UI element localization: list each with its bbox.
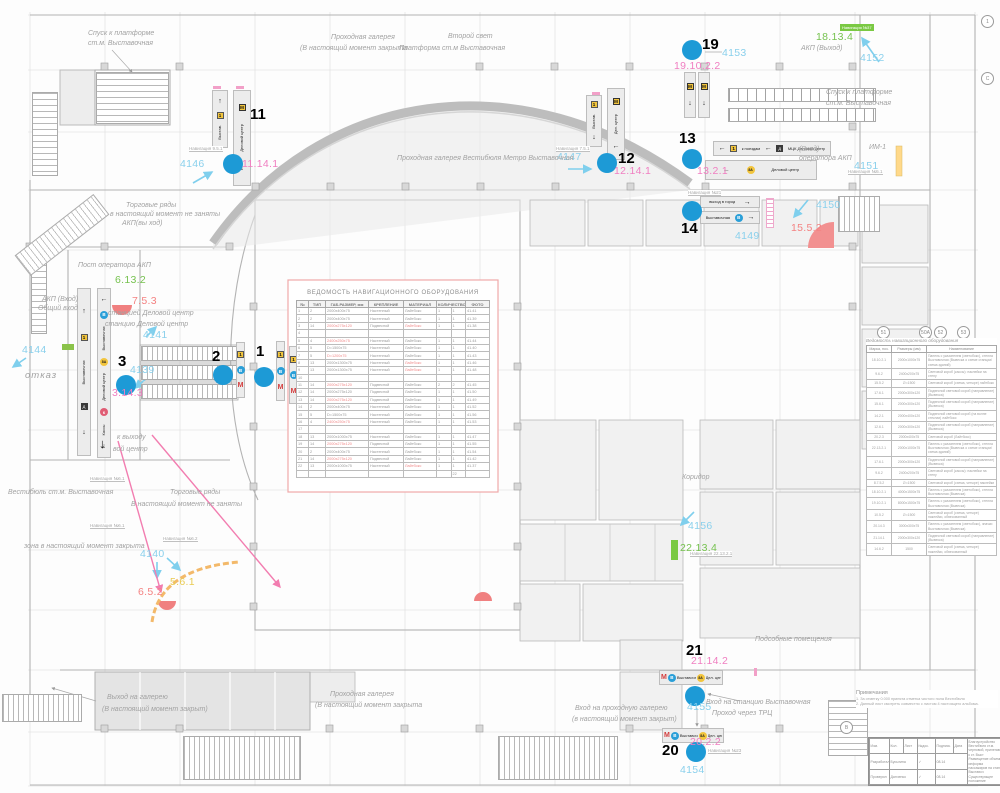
m-red-icon (278, 384, 284, 391)
arrow-left-icon (765, 145, 772, 152)
sign-text: Деловой центр (102, 373, 106, 401)
cell-material (404, 374, 437, 381)
cell-mark: 9.6.2 (867, 468, 892, 480)
cell-mount: Настенный (369, 463, 404, 470)
table-row: 5 4 2400x250x75 Настенный Лайтбокс 1 1 4… (297, 337, 490, 344)
table-row: 13 14 2000x275x120 Подвесной Лайтбокс 1 … (297, 396, 490, 403)
table-row: 11 14 2000x275x120 Подвесной Лайтбокс 2 … (297, 381, 490, 388)
cell-photo: 41.40 (466, 344, 490, 351)
cell-size: D=1200x75 (326, 352, 369, 359)
wayfinding-sign: Выстав. (586, 95, 602, 147)
cell-size: 2000x275x120 (326, 396, 369, 403)
col-number: № (297, 301, 309, 308)
table-row: 18 13 2000x1000x75 Настенный Лайтбокс 1 … (297, 433, 490, 440)
cell-dimensions: 2000x1000x75 (892, 353, 927, 369)
cell-qty-1: 1 (437, 455, 452, 462)
cell-number: 15 (297, 411, 309, 418)
dot-blue-icon (671, 732, 679, 740)
tb-sig-1: ✓ (918, 754, 936, 769)
cell-material: Лайтбокс (404, 441, 437, 448)
cell-photo: 41.54 (466, 448, 490, 455)
table-row: 12 14 2000x275x120 Подвесной Лайтбокс 1 … (297, 389, 490, 396)
cell-size: 2000x275x120 (326, 441, 369, 448)
table-row: 15 5 D=1500x75 Настенный Лайтбокс 1 1 41… (297, 411, 490, 418)
cell-total: 22 (451, 470, 466, 477)
navigation-tag: Навигация №21 (688, 190, 721, 196)
cell-dimensions: 2000x300x120 (892, 387, 927, 399)
cell-qty-1: 1 (437, 463, 452, 470)
navigation-tag: Навигация №6.2 (163, 536, 198, 542)
cell-mount: Настенный (369, 352, 404, 359)
cad-label: Подсобные помещения (755, 636, 832, 643)
location-marker-dot[interactable] (254, 367, 274, 387)
cell-qty-2: 1 (451, 352, 466, 359)
dot-blue-icon (277, 367, 285, 375)
cell-type: 13 (309, 359, 326, 366)
wayfinding-sign (276, 341, 285, 401)
cell-dimensions: ∅=1500 (892, 479, 927, 486)
cell-name: Световой короб (схема, четыре) лайтбокс (927, 380, 997, 387)
cad-label: АКП(вы ход) (122, 220, 162, 227)
cell-number: 17 (297, 426, 309, 433)
cell-number: 21 (297, 455, 309, 462)
cell-material: Лайтбокс (404, 448, 437, 455)
cell-size: 2000x275x120 (326, 322, 369, 329)
pink-zone-hatch (766, 198, 774, 228)
cell-qty-1: 1 (437, 441, 452, 448)
table-row: 14.6.2 1500 Световой короб (схема, четыр… (867, 544, 997, 556)
cell-name: Подвесной световой короб (направление) (… (927, 387, 997, 399)
cell-qty-1: 1 (437, 367, 452, 374)
col-photo: ФОТО (466, 301, 490, 308)
cell-material (404, 330, 437, 337)
cell-photo: 41.45 (466, 381, 490, 388)
cad-label: В настоящий момент не заняты (131, 501, 242, 508)
table-row: 9 13 2000x1300x75 Настенный Лайтбокс 1 1… (297, 367, 490, 374)
cell-material: Лайтбокс (404, 389, 437, 396)
cell-qty-2: 1 (451, 359, 466, 366)
cell-dimensions: ∅=1500 (892, 380, 927, 387)
cell-name: Подвесной световой короб (направление) (… (927, 422, 997, 434)
cell-mark: 20.2.3 (867, 433, 892, 440)
tb-izm: Изм. (870, 739, 890, 754)
position-code: 7.5.3 (132, 295, 157, 307)
cell-size: 2400x250x75 (326, 418, 369, 425)
table-row: 10.5.2 ∅=1500 Световой короб (схема, чет… (867, 509, 997, 521)
cell-mount: Подвесной (369, 396, 404, 403)
cell-name: Подвесной световой короб (на волне стекл… (927, 410, 997, 422)
position-code: 4146 (180, 158, 205, 170)
navigation-equipment-list: Ведомость навигационного оборудования Ма… (866, 338, 997, 556)
dot-blue-icon (735, 214, 743, 222)
cad-label: станцией Деловой центр (108, 310, 194, 317)
wayfinding-sign: выход в город (700, 196, 760, 208)
table-row: 9.6.2 2400x200x75 Световой короб (кассы)… (867, 368, 997, 380)
cad-label: Второй свет (448, 33, 493, 40)
wayfinding-sign (698, 72, 710, 118)
cell-number: 8 (297, 359, 309, 366)
cad-label: Платформа ст.м Выставочная (399, 45, 505, 52)
cell-type (309, 330, 326, 337)
cad-label: АКП (Вход) (42, 296, 78, 303)
cell-name: Панель с указателем (светобокс), стелла … (927, 440, 997, 456)
position-code: 4152 (860, 52, 885, 64)
cell-mount: Подвесной (369, 441, 404, 448)
cell-number: 14 (297, 404, 309, 411)
cell-dimensions: 8000x1500x75 (892, 498, 927, 510)
cell-size: 2000x1000x75 (326, 463, 369, 470)
navigation-tag: Навигация №6.1 (90, 476, 125, 482)
table-row: 17.6.1 2000x300x120 Подвесной световой к… (867, 387, 997, 399)
cell-photo: 41.37 (466, 463, 490, 470)
cell-dimensions: 2000x400x120 (892, 410, 927, 422)
cell-qty-1: 1 (437, 322, 452, 329)
cell-mark: 22.13.2.1 (867, 440, 892, 456)
position-code: 12.14.1 (614, 165, 651, 177)
cad-label: Вход на станцию Выставочная (706, 699, 811, 706)
position-code: 5.6.1 (170, 576, 195, 588)
position-code: 3.14.3 (112, 387, 143, 399)
cell-mark: 8.7.5.2 (867, 479, 892, 486)
position-code: 4141 (143, 329, 168, 341)
sq-dark-icon (81, 403, 88, 410)
cell-type: 14 (309, 455, 326, 462)
table-row: 12.6.1 2000x300x120 Подвесной световой к… (867, 422, 997, 434)
table-row: 16 4 2400x250x75 Настенный Лайтбокс 1 1 … (297, 418, 490, 425)
position-code: 18.13.4 (816, 31, 853, 43)
cell-mark: 15.6.1 (867, 399, 892, 411)
cell-mark: 17.6.1 (867, 456, 892, 468)
cell-material: Лайтбокс (404, 381, 437, 388)
cell-photo: 41.48 (466, 367, 490, 374)
cell-type: 2 (309, 308, 326, 315)
cell-material: Лайтбокс (404, 367, 437, 374)
arrow-down-icon (688, 100, 692, 107)
navigation-tag: Навигация 22.13.2.1 (690, 551, 732, 557)
arrow-right-icon (744, 199, 751, 206)
cell-type (309, 374, 326, 381)
cell-number: 1 (297, 308, 309, 315)
grid-axis-bubble: С (981, 72, 994, 85)
cell-size: 2000x1000x75 (326, 433, 369, 440)
cell-qty-2: 1 (451, 344, 466, 351)
cell-number: 4 (297, 330, 309, 337)
cell-qty-2 (451, 330, 466, 337)
turnstiles-hatch-right (838, 196, 880, 232)
cad-label: Проходная галерея (330, 691, 394, 698)
cell-size: D=1500x75 (326, 411, 369, 418)
m-yellow-icon (687, 83, 694, 90)
cell-mount: Подвесной (369, 455, 404, 462)
cell-qty-2: 1 (451, 404, 466, 411)
cell-material: Лайтбокс (404, 404, 437, 411)
cell-mark: 14.6.2 (867, 544, 892, 556)
cell-dimensions: 2000x300x120 (892, 456, 927, 468)
cell-qty-1: 1 (437, 404, 452, 411)
position-code: 20.2.2 (690, 736, 721, 748)
cell-material: Лайтбокс (404, 411, 437, 418)
cell-dimensions: ∅=1500 (892, 509, 927, 521)
table-row: 15.6.1 2000x300x120 Подвесной световой к… (867, 399, 997, 411)
cell-material: Лайтбокс (404, 322, 437, 329)
cell-number: 2 (297, 315, 309, 322)
grid-axis-bubble: В (840, 721, 853, 734)
col-dimensions: Размеры (мм) (892, 346, 927, 353)
escalator-hatch-3 (141, 384, 237, 399)
wayfinding-sign: Выстав. (212, 90, 228, 148)
position-code: 13.2.1 (697, 165, 728, 177)
cell-qty-1: 1 (437, 344, 452, 351)
cell-material: Лайтбокс (404, 455, 437, 462)
equipment-schedule-title: ВЕДОМОСТЬ НАВИГАЦИОННОГО ОБОРУДОВАНИЯ (296, 290, 490, 296)
cell-qty-1: 1 (437, 359, 452, 366)
floor-plan-canvas: Выстав.Деловой центрВыстав.Дел. центрк п… (0, 0, 1000, 793)
arrow-down-icon (82, 429, 86, 436)
cell-qty-1: 1 (437, 448, 452, 455)
green-navigation-tag: Навигация №37 (840, 24, 874, 31)
navigation-tag: Навигация №5.1 (848, 169, 883, 175)
location-marker-dot[interactable] (682, 40, 702, 60)
cad-label: Проходная галерея (331, 34, 395, 41)
cad-label: в настоящий момент не заняты (110, 211, 220, 218)
wayfinding-sign: ВыставочнаяДел. центр (659, 670, 723, 685)
cell-mark: 19.10.2.1 (867, 498, 892, 510)
cell-dimensions: 2400x200x75 (892, 368, 927, 380)
cell-type: 2 (309, 448, 326, 455)
cell-type: 5 (309, 344, 326, 351)
table-row: 6 5 D=1500x75 Настенный Лайтбокс 1 1 41.… (297, 344, 490, 351)
tb-date-2: 08.14 (936, 769, 968, 784)
arrow-up-icon (82, 308, 86, 315)
cell-dimensions: 2000x300x120 (892, 532, 927, 544)
sign-text: Деловой центр (240, 124, 244, 152)
cad-label: Пост оператора АКП (78, 262, 151, 269)
position-code: 21.14.2 (691, 655, 728, 667)
cell-qty-2: 1 (451, 448, 466, 455)
cell-mount: Настенный (369, 315, 404, 322)
cell-photo: 41.50 (466, 389, 490, 396)
position-code: 4144 (22, 344, 47, 356)
cell-number: 12 (297, 389, 309, 396)
tb-role-1: Разработал (870, 754, 890, 769)
sign-text: Выстав. (592, 114, 596, 129)
col-name: Наименование (927, 346, 997, 353)
cell-qty-2: 1 (451, 441, 466, 448)
tb-kol: Кол. (890, 739, 904, 754)
position-code: 4156 (688, 520, 713, 532)
table-header-row: Марка, поз. Размеры (мм) Наименование (867, 346, 997, 353)
cell-mount: Подвесной (369, 389, 404, 396)
cell-qty-2: 1 (451, 308, 466, 315)
cell-mount: Настенный (369, 418, 404, 425)
cad-label: Проходная галерея Вестибюля Метро Выстав… (397, 155, 573, 162)
location-marker-number: 14 (681, 221, 698, 236)
sign-text: Выстав. (218, 125, 222, 140)
cad-label: оператора АКП (799, 155, 852, 162)
location-marker-number: 1 (256, 344, 264, 359)
cell-size: 2000x400x75 (326, 404, 369, 411)
position-code: 6.5.2 (138, 586, 163, 598)
note-item: 2. Данный лист смотреть совместно с лист… (856, 702, 998, 707)
position-code: 15.5.2 (791, 222, 822, 234)
cell-qty-1: 1 (437, 396, 452, 403)
cell-name: Подвесной световой короб (направление) (… (927, 532, 997, 544)
arrow-left-icon (101, 296, 108, 303)
cell-mark: 9.6.2 (867, 368, 892, 380)
cell-type: 13 (309, 463, 326, 470)
table-row: 22.13.2.1 2000x1000x75 Панель с указател… (867, 440, 997, 456)
cell-material: Лайтбокс (404, 344, 437, 351)
cell-material (404, 426, 437, 433)
cad-label: к выходу (117, 434, 146, 441)
cell-type: 2 (309, 404, 326, 411)
navigation-tag: Навигация №23 (708, 748, 741, 754)
cell-type: 14 (309, 389, 326, 396)
cell-number: 5 (297, 337, 309, 344)
table-row: 20.14.3 3000x300x75 Панель с указателем … (867, 521, 997, 533)
direction-arrow-glyph: ↓ (99, 437, 106, 450)
cell-name: Световой короб (схема, четыре) наклейки (927, 479, 997, 486)
sign-text: Дел. центр (614, 114, 618, 134)
title-block: Изм. Кол. Лист №док. Подпись Дата Благоу… (868, 737, 1000, 786)
cell-size: 2000x1300x75 (326, 367, 369, 374)
location-marker-dot[interactable] (682, 201, 702, 221)
location-marker-number: 2 (212, 349, 220, 364)
cell-mark: 17.6.1 (867, 387, 892, 399)
cell-photo (466, 330, 490, 337)
cell-size (326, 426, 369, 433)
cell-mount: Подвесной (369, 322, 404, 329)
cell-photo: 41.56 (466, 411, 490, 418)
wayfinding-sign: Выставочная (77, 288, 91, 456)
cell-photo: 41.39 (466, 315, 490, 322)
position-code: 19.10.2.2 (674, 60, 721, 72)
col-size: ГАБ.РАЗМЕР, мм (326, 301, 369, 308)
sq-yellow-icon (277, 351, 284, 358)
cell-type: 13 (309, 367, 326, 374)
table-row: 8 13 2000x1300x75 Настенный Лайтбокс 1 1… (297, 359, 490, 366)
table-row: 3 14 2000x275x120 Подвесной Лайтбокс 1 1… (297, 322, 490, 329)
cad-label: (в настоящий момент закрыт) (572, 716, 677, 723)
cad-label: (В настоящий момент закрыт) (102, 706, 208, 713)
location-marker-dot[interactable] (223, 154, 243, 174)
tb-doc-title: Благоустройство Вестибюля ст.м.черновой,… (968, 739, 1000, 785)
cell-mount (369, 374, 404, 381)
cell-material: Лайтбокс (404, 418, 437, 425)
cell-qty-1: 1 (437, 433, 452, 440)
cell-material: Лайтбокс (404, 352, 437, 359)
cell-mark: 10.5.2 (867, 509, 892, 521)
cell-photo: 41.42 (466, 455, 490, 462)
arrow-left-icon (719, 145, 726, 152)
cell-mark: 20.14.3 (867, 521, 892, 533)
cell-mount: Настенный (369, 337, 404, 344)
position-code: 4154 (680, 764, 705, 776)
cell-qty-2: 1 (451, 322, 466, 329)
cell-number: 20 (297, 448, 309, 455)
cell-name: Подвесной световой короб (направление) (… (927, 399, 997, 411)
sq-yellow-icon (730, 145, 737, 152)
cell-material: Лайтбокс (404, 337, 437, 344)
cell-photo (466, 374, 490, 381)
cell-size: 2000x275x120 (326, 455, 369, 462)
table-row: 20 2 2000x400x75 Настенный Лайтбокс 1 1 … (297, 448, 490, 455)
cad-label: Вход на проходную галерею (575, 705, 668, 712)
cell-qty-2: 1 (451, 389, 466, 396)
navigation-tag: Навигация №6.1 (90, 523, 125, 529)
position-code: 11.14.1 (242, 158, 278, 170)
cell-name: Световой короб (схема, четыре) наклейки,… (927, 509, 997, 521)
cell-qty-2: 2 (451, 381, 466, 388)
cell-type: 5 (309, 352, 326, 359)
cell-qty-1: 1 (437, 352, 452, 359)
location-marker-number: 13 (679, 131, 696, 146)
table-row: 1 2 2000x400x75 Настенный Лайтбокс 1 1 4… (297, 308, 490, 315)
stairs-hatch-bottom-right (498, 736, 618, 780)
table-row: 19 14 2000x275x120 Подвесной Лайтбокс 1 … (297, 441, 490, 448)
navigation-equipment-list-title: Ведомость навигационного оборудования (866, 338, 997, 343)
sq-yellow-icon (591, 101, 598, 108)
cell-number: 9 (297, 367, 309, 374)
cell-type: 14 (309, 396, 326, 403)
cell-number: 13 (297, 396, 309, 403)
cell-size: 2000x275x120 (326, 389, 369, 396)
cell-qty-1: 1 (437, 337, 452, 344)
m-yellow-icon (239, 104, 246, 111)
cell-qty-1: 1 (437, 315, 452, 322)
cell-material: Лайтбокс (404, 433, 437, 440)
cell-qty-1: 2 (437, 381, 452, 388)
cell-mount (369, 330, 404, 337)
sign-text: Деловой центр (771, 168, 799, 172)
cell-photo: 41.49 (466, 396, 490, 403)
cell-dimensions: 2000x300x120 (892, 399, 927, 411)
location-marker-dot[interactable] (213, 365, 233, 385)
table-row: 8.7.5.2 ∅=1500 Световой короб (схема, че… (867, 479, 997, 486)
cell-type: 14 (309, 381, 326, 388)
position-code: 4153 (722, 47, 747, 59)
cell-number: 16 (297, 418, 309, 425)
cell-qty-1: 1 (437, 418, 452, 425)
position-code: 6.13.2 (115, 274, 146, 286)
cell-number: 6 (297, 344, 309, 351)
cell-type: 5 (309, 411, 326, 418)
col-mount: КРЕПЛЕНИЕ (369, 301, 404, 308)
cell-mount: Настенный (369, 411, 404, 418)
cell-qty-2 (451, 374, 466, 381)
sign-text: Выставочная (677, 676, 696, 680)
cell-number: 22 (297, 463, 309, 470)
stairs-hatch-bottom-left (183, 736, 301, 780)
cell-number: 7 (297, 352, 309, 359)
cell-mark: 12.6.1 (867, 422, 892, 434)
cell-photo: 41.47 (466, 433, 490, 440)
cell-qty-1: 1 (437, 389, 452, 396)
equipment-schedule-table: ВЕДОМОСТЬ НАВИГАЦИОННОГО ОБОРУДОВАНИЯ № … (296, 288, 490, 478)
sign-text: Дел. центр (706, 676, 721, 680)
cell-mount: Настенный (369, 404, 404, 411)
cad-label: АКП (Выход) (801, 45, 842, 52)
navigation-tag: Навигация 9.5.1 (189, 146, 223, 152)
cad-label: (В настоящий момент закрыта (300, 45, 407, 52)
wayfinding-sign (684, 72, 696, 118)
8a-icon (100, 358, 108, 366)
title-block-header: Изм. Кол. Лист №док. Подпись Дата Благоу… (870, 739, 1000, 754)
cell-mount: Настенный (369, 367, 404, 374)
cell-photo: 41.44 (466, 337, 490, 344)
cell-name: Панель с указателем (светобокс), стелла … (927, 498, 997, 510)
wayfinding-sign (236, 342, 245, 398)
